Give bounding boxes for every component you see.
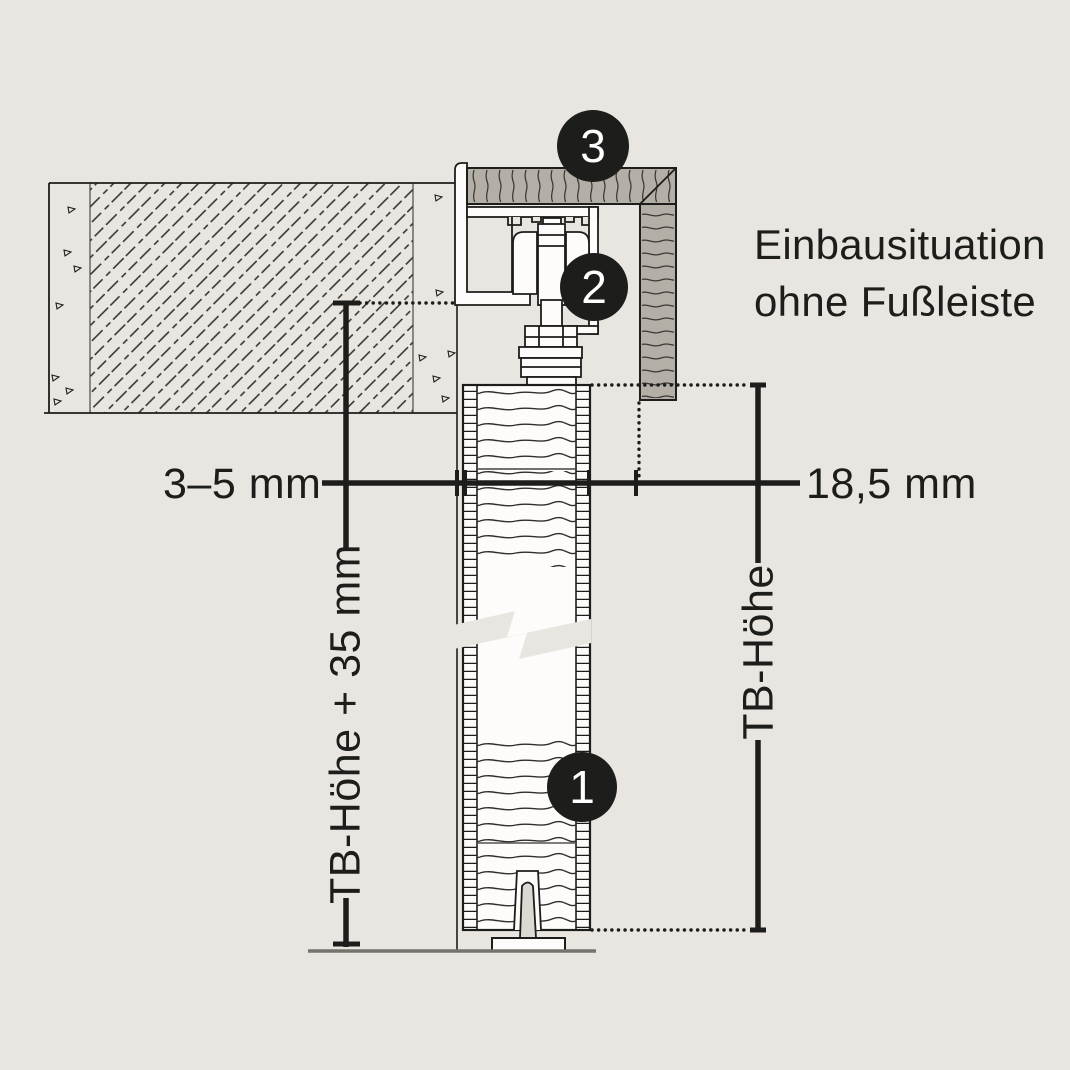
- wall-masonry-hatch: [90, 183, 413, 413]
- wall-section: [44, 183, 457, 413]
- door-grain-top: [477, 387, 576, 467]
- floor-guide-plate: [492, 938, 565, 951]
- door-edge-left: [463, 385, 477, 930]
- drawing-canvas: [0, 0, 1070, 1070]
- dim-label-total-height: TB-Höhe + 35 mm: [322, 544, 371, 904]
- marker-2-trolley: 2: [560, 253, 628, 321]
- suspension-plate: [519, 347, 582, 358]
- title-line-2: ohne Fußleiste: [754, 273, 1046, 330]
- floor-guide-pin: [520, 883, 536, 939]
- track-top-plate: [467, 207, 598, 217]
- dim-label-fascia-gap: 18,5 mm: [806, 460, 977, 509]
- roller-wheel-left: [513, 232, 537, 294]
- dim-label-wall-gap: 3–5 mm: [163, 460, 321, 509]
- door-panel: [463, 385, 590, 951]
- title-line-1: Einbausituation: [754, 216, 1046, 273]
- marker-3-fascia: 3: [557, 110, 629, 182]
- marker-1-door: 1: [547, 752, 617, 822]
- door-edge-right: [576, 385, 590, 930]
- dim-label-door-height: TB-Höhe: [735, 564, 784, 740]
- technical-drawing: Einbausituation ohne Fußleiste 3–5 mm 18…: [0, 0, 1070, 1070]
- drawing-title: Einbausituation ohne Fußleiste: [754, 216, 1046, 330]
